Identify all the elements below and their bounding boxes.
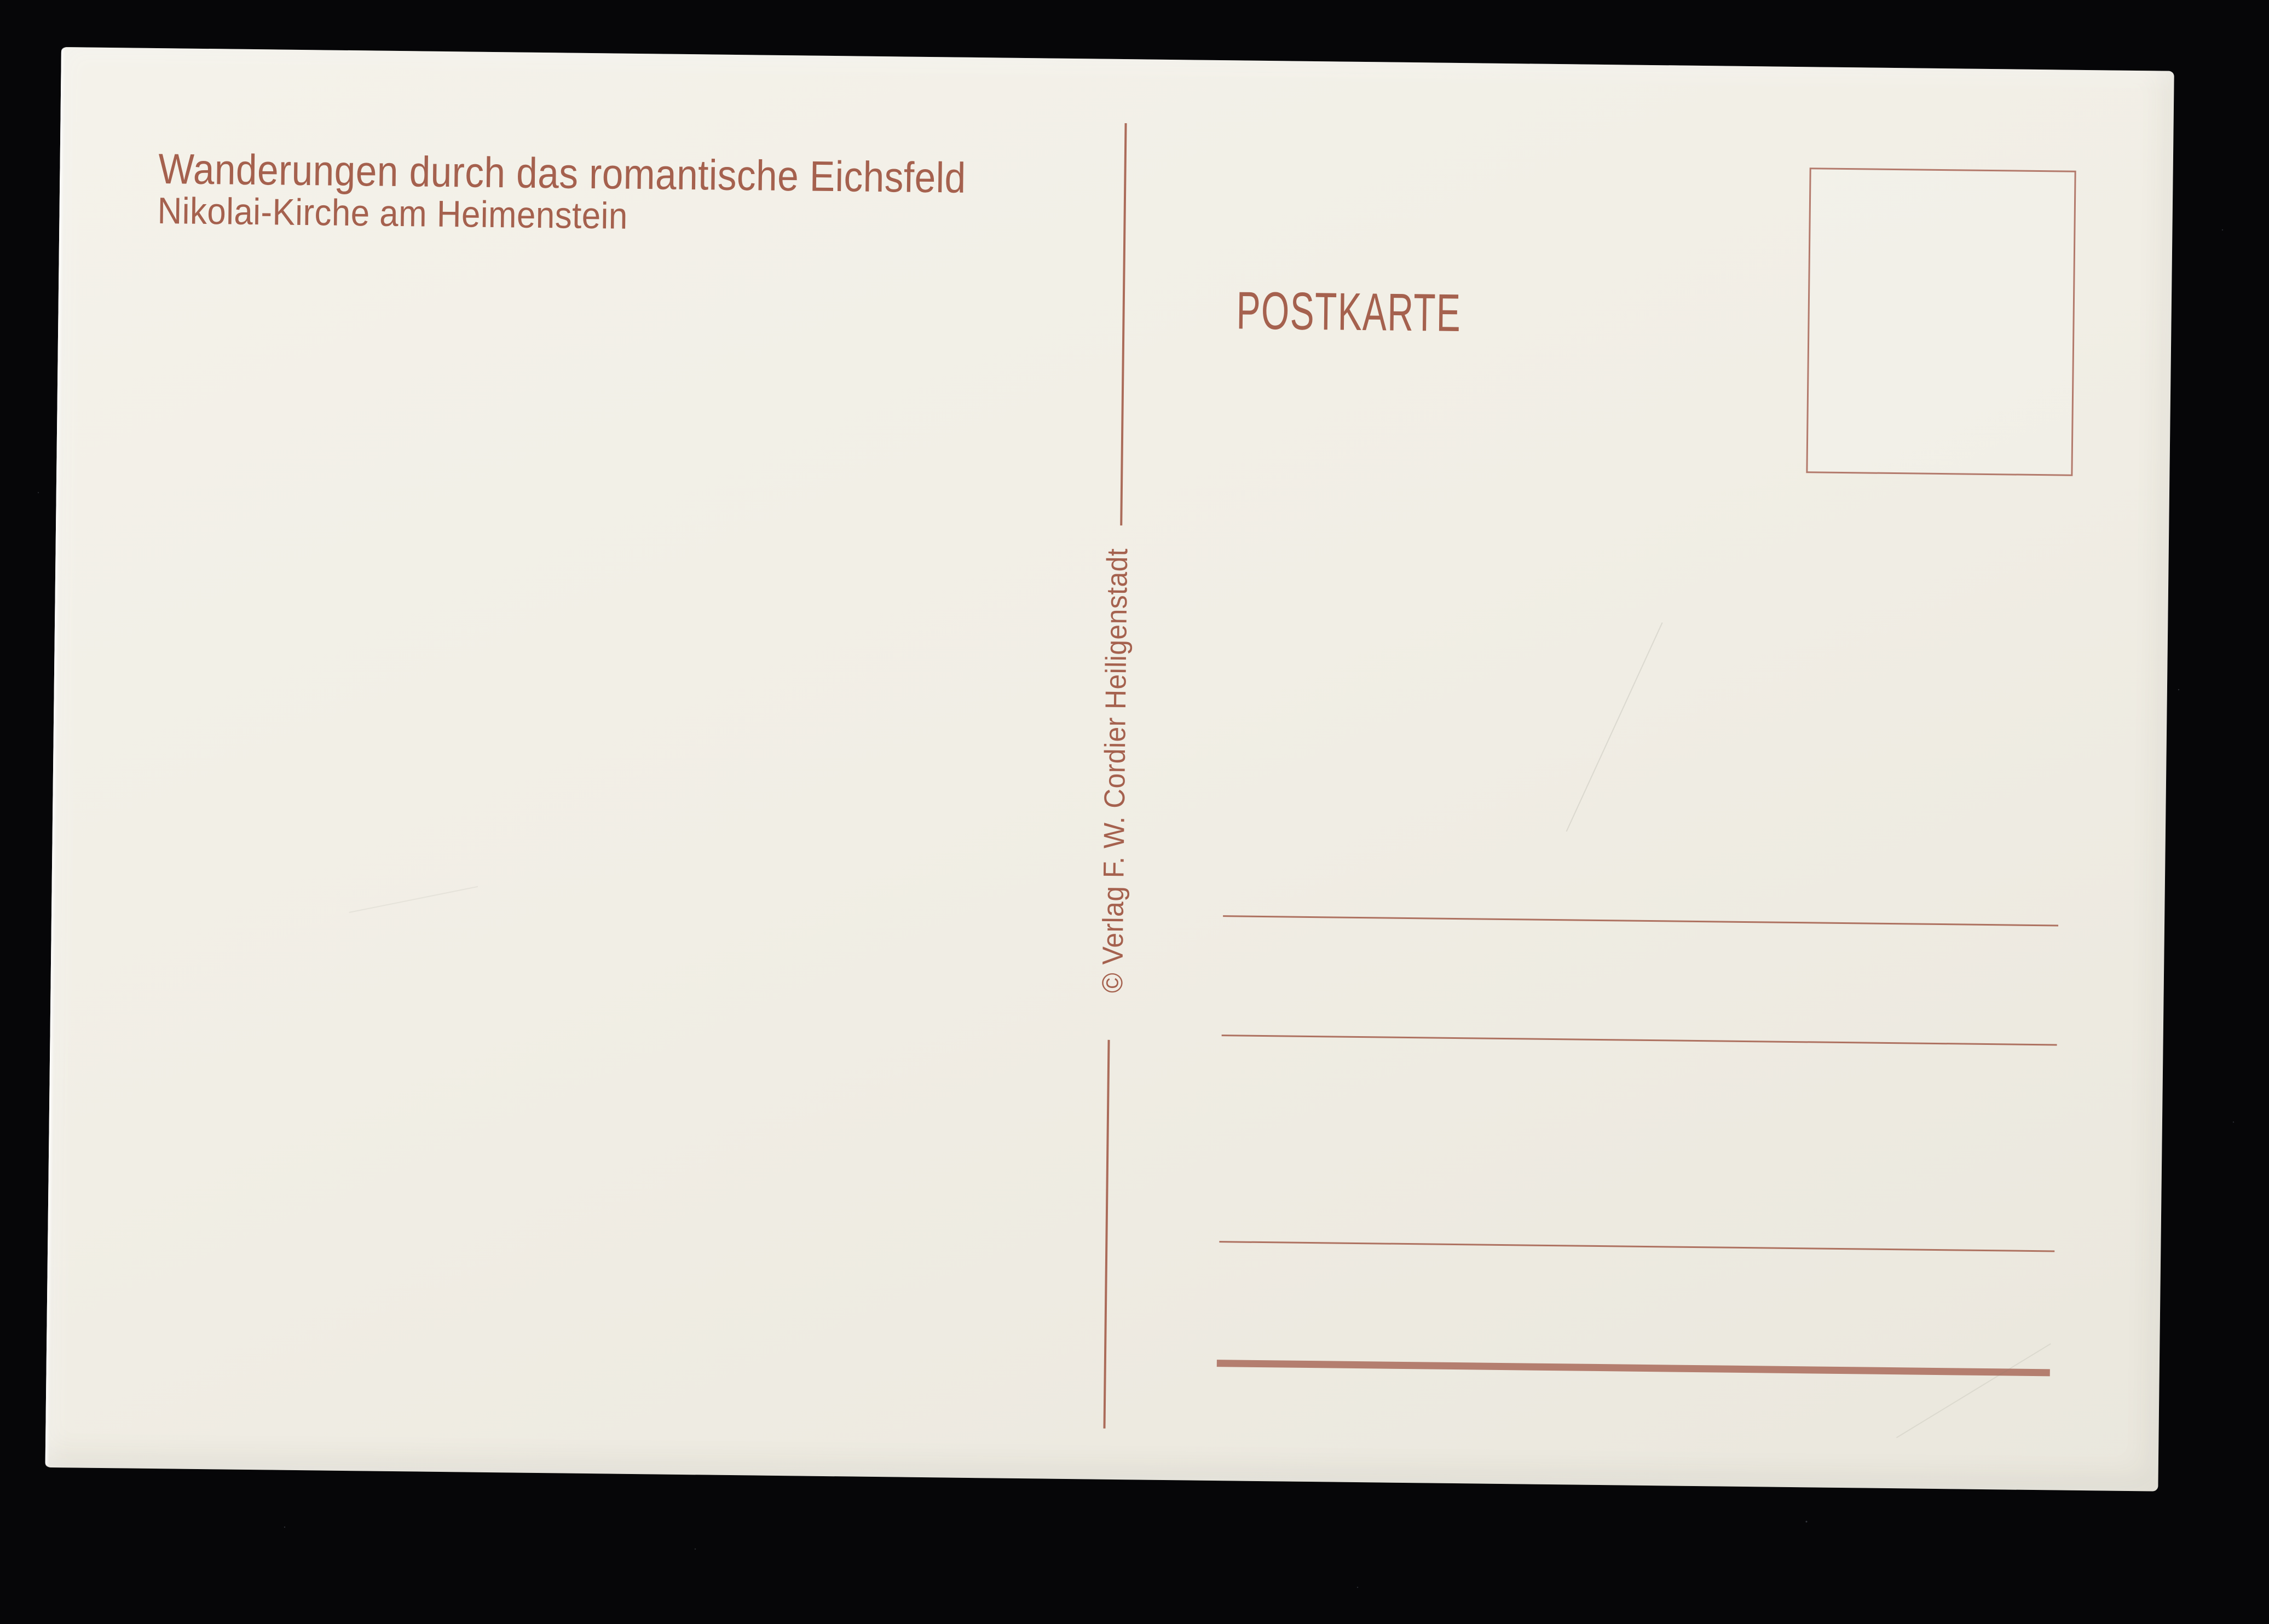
divider-line-upper xyxy=(1120,123,1127,525)
scratch-mark xyxy=(1566,622,1663,832)
scratch-mark xyxy=(1896,1343,2051,1438)
address-line-3 xyxy=(1219,1241,2054,1252)
address-line-1 xyxy=(1223,915,2058,926)
scanner-background: Wanderungen durch das romantische Eichsf… xyxy=(0,0,2269,1624)
series-subtitle: Nikolai-Kirche am Heimenstein xyxy=(157,192,628,235)
stamp-box xyxy=(1806,167,2076,476)
divider-line-lower xyxy=(1103,1040,1110,1429)
publisher-credit: © Verlag F. W. Cordier Heiligenstadt xyxy=(1098,548,1132,993)
address-line-heavy xyxy=(1217,1360,2050,1376)
postcard: Wanderungen durch das romantische Eichsf… xyxy=(45,47,2174,1492)
scratch-mark xyxy=(349,886,478,913)
card-type-heading: POSTKARTE xyxy=(1236,284,1462,339)
address-line-2 xyxy=(1222,1034,2057,1045)
